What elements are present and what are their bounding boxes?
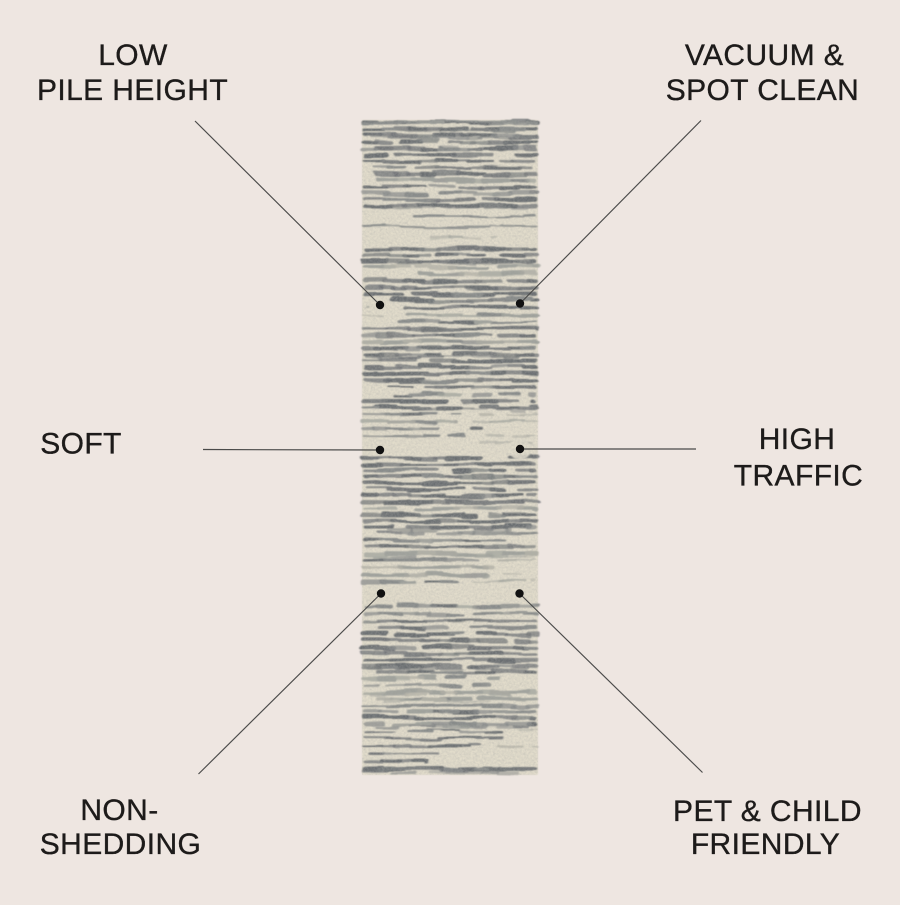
svg-text:HIGH: HIGH (759, 423, 836, 456)
svg-text:SPOT CLEAN: SPOT CLEAN (666, 74, 860, 107)
svg-text:SHEDDING: SHEDDING (40, 828, 202, 861)
svg-text:TRAFFIC: TRAFFIC (734, 460, 863, 493)
svg-text:FRIENDLY: FRIENDLY (691, 828, 840, 861)
svg-text:VACUUM &: VACUUM & (685, 39, 844, 72)
svg-text:SOFT: SOFT (40, 428, 122, 461)
svg-text:NON-: NON- (80, 794, 158, 827)
svg-text:PILE HEIGHT: PILE HEIGHT (37, 74, 228, 107)
svg-text:LOW: LOW (98, 39, 168, 72)
svg-text:PET & CHILD: PET & CHILD (673, 795, 862, 828)
